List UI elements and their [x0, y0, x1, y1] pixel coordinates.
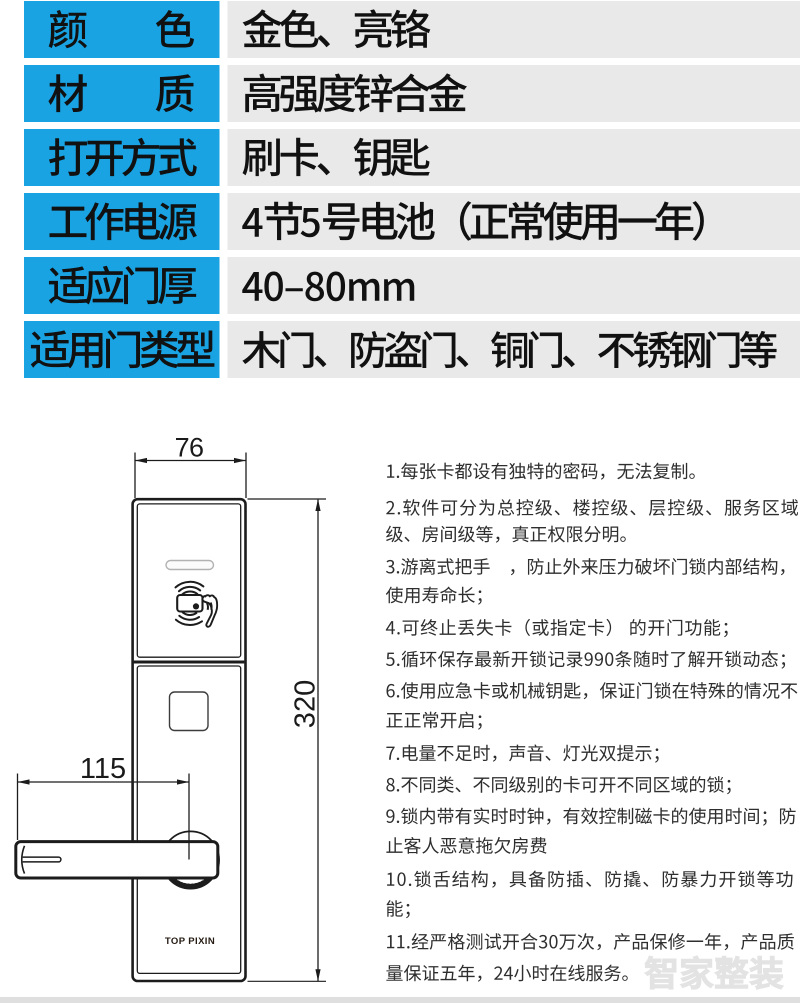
svg-text:76: 76 [175, 433, 204, 463]
svg-text:TOP PIXIN: TOP PIXIN [165, 936, 215, 947]
svg-text:320: 320 [290, 680, 322, 728]
svg-text:115: 115 [80, 753, 126, 785]
